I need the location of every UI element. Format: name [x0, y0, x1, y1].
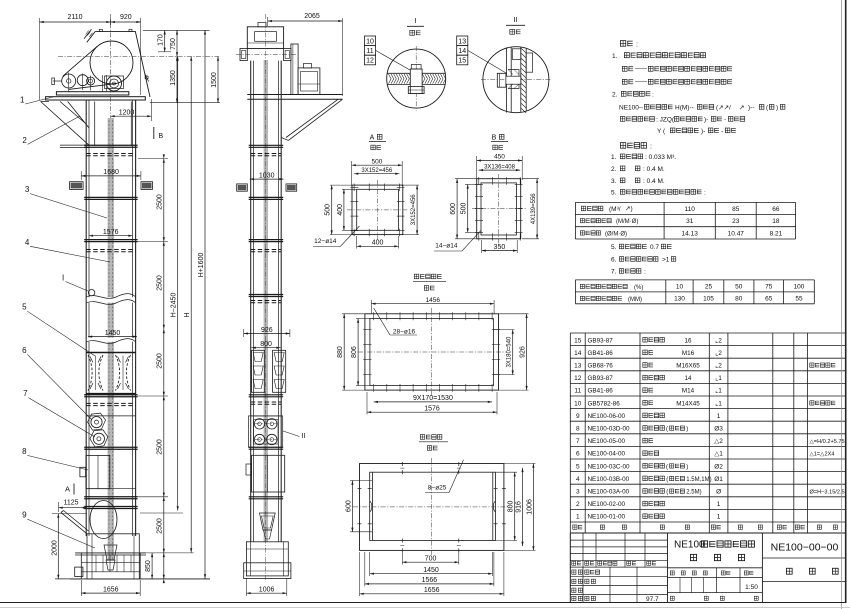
- svg-text::: :: [644, 269, 646, 276]
- svg-text:2065: 2065: [304, 13, 320, 20]
- svg-text:NE100-06-00: NE100-06-00: [588, 413, 626, 420]
- svg-text:NE100-03D-00: NE100-03D-00: [588, 426, 631, 433]
- svg-text:△1: △1: [714, 451, 723, 458]
- svg-text:500: 500: [325, 204, 332, 216]
- svg-text:400: 400: [337, 204, 344, 216]
- svg-text:NE100−00−00: NE100−00−00: [771, 542, 839, 554]
- svg-text:14: 14: [458, 48, 466, 55]
- svg-text:NE100: NE100: [674, 540, 705, 551]
- svg-text:7: 7: [23, 389, 28, 398]
- svg-text:3X136=408: 3X136=408: [484, 164, 516, 170]
- svg-text:1450: 1450: [423, 567, 439, 574]
- svg-text:II: II: [302, 433, 306, 440]
- svg-text:⌞2: ⌞2: [715, 350, 722, 357]
- svg-text:5.: 5.: [611, 244, 617, 251]
- svg-text:9: 9: [22, 511, 27, 520]
- svg-text:800: 800: [508, 500, 515, 512]
- svg-text:Ø2: Ø2: [714, 463, 723, 470]
- svg-text:100: 100: [794, 284, 805, 291]
- svg-text:(Ø/M·Ø): (Ø/M·Ø): [605, 231, 627, 237]
- svg-text:)--: )--: [748, 105, 755, 112]
- svg-text::: :: [704, 190, 706, 197]
- svg-text:920: 920: [120, 14, 132, 21]
- svg-text:1456: 1456: [426, 297, 441, 304]
- svg-text:800: 800: [260, 341, 272, 348]
- svg-text:11: 11: [574, 388, 581, 395]
- svg-text:M16X65: M16X65: [676, 363, 700, 370]
- svg-text:600: 600: [450, 203, 457, 215]
- svg-text:⌞2: ⌞2: [715, 363, 722, 370]
- svg-text:10: 10: [366, 38, 374, 45]
- svg-text:): ): [686, 427, 688, 433]
- svg-text:1566: 1566: [422, 577, 438, 584]
- svg-text:75: 75: [765, 284, 773, 291]
- svg-text:97.7: 97.7: [646, 596, 659, 603]
- svg-text::: :: [636, 42, 638, 49]
- svg-text:2500: 2500: [157, 194, 164, 210]
- svg-text:(: (: [666, 477, 668, 483]
- svg-text:——: ——: [635, 80, 647, 86]
- svg-text:B: B: [492, 135, 497, 142]
- svg-text:4X139=556: 4X139=556: [531, 193, 537, 225]
- svg-text:2.5M): 2.5M): [686, 490, 701, 496]
- svg-text:3X152=456: 3X152=456: [411, 194, 417, 226]
- svg-text:25: 25: [705, 284, 713, 291]
- svg-text:10.47: 10.47: [728, 230, 745, 237]
- svg-text:1450: 1450: [105, 330, 121, 337]
- svg-text:13: 13: [458, 38, 466, 45]
- svg-text:(%): (%): [634, 285, 643, 291]
- svg-text:↗: ↗: [739, 105, 744, 112]
- svg-text:1656: 1656: [424, 587, 440, 594]
- svg-text:3X152=456: 3X152=456: [361, 168, 393, 174]
- svg-text:450: 450: [494, 154, 505, 161]
- svg-text:>1: >1: [662, 257, 670, 264]
- svg-text:1.: 1.: [612, 53, 618, 60]
- svg-text:1: 1: [717, 514, 721, 521]
- svg-text:GB5782-86: GB5782-86: [588, 400, 621, 407]
- svg-text:31: 31: [686, 218, 694, 225]
- svg-text:1006: 1006: [526, 499, 533, 515]
- svg-text:700: 700: [425, 555, 437, 562]
- svg-text:110: 110: [685, 206, 696, 213]
- svg-text:: 0.033 M³.: : 0.033 M³.: [645, 154, 676, 161]
- svg-text:55: 55: [795, 296, 803, 303]
- svg-text:1576: 1576: [103, 229, 119, 236]
- svg-text:Y (: Y (: [657, 128, 666, 135]
- svg-text:1: 1: [20, 96, 25, 105]
- svg-text:10: 10: [676, 284, 684, 291]
- svg-text:(: (: [766, 105, 769, 112]
- svg-text:I: I: [414, 16, 416, 25]
- svg-text:2000: 2000: [51, 540, 58, 556]
- svg-text:-: -: [724, 117, 726, 124]
- svg-text:400: 400: [372, 240, 384, 247]
- svg-text:)-: )-: [704, 117, 708, 124]
- svg-text:): ): [776, 105, 778, 112]
- svg-text:2: 2: [22, 136, 27, 145]
- svg-text:⌞1: ⌞1: [715, 375, 722, 382]
- svg-text:1680: 1680: [103, 169, 119, 176]
- svg-text:3: 3: [25, 185, 30, 194]
- svg-text:(M³/: (M³/: [609, 206, 621, 213]
- svg-text:(: (: [666, 427, 668, 433]
- svg-text:: JZQ(: : JZQ(: [656, 117, 675, 124]
- svg-text:: 0.4 M.: : 0.4 M.: [643, 166, 665, 173]
- svg-text:8: 8: [576, 426, 580, 433]
- svg-text:11: 11: [366, 48, 373, 55]
- svg-text:170: 170: [158, 34, 165, 46]
- svg-text:23: 23: [732, 218, 740, 225]
- svg-text:105: 105: [703, 296, 714, 303]
- svg-text:1: 1: [576, 514, 580, 521]
- svg-text:H+1600: H+1600: [198, 253, 205, 278]
- svg-text:GB41-86: GB41-86: [588, 388, 614, 395]
- svg-text:18: 18: [772, 218, 780, 225]
- svg-text:2500: 2500: [157, 518, 164, 534]
- svg-text:916: 916: [516, 501, 523, 513]
- svg-text:NE100-01-00: NE100-01-00: [588, 514, 626, 521]
- svg-text:6: 6: [22, 346, 27, 355]
- svg-text:(↗↗/: (↗↗/: [716, 105, 731, 112]
- svg-text:1006: 1006: [259, 586, 275, 593]
- svg-text:66: 66: [772, 206, 780, 213]
- svg-text:3X180=540: 3X180=540: [507, 336, 513, 368]
- svg-text:350: 350: [494, 244, 506, 251]
- svg-text:0.7: 0.7: [650, 244, 659, 251]
- svg-text:Ø3: Ø3: [714, 426, 723, 433]
- svg-text:1350: 1350: [170, 70, 177, 86]
- svg-text:65: 65: [765, 296, 773, 303]
- svg-text:14: 14: [684, 375, 692, 382]
- svg-text:926: 926: [520, 346, 527, 358]
- svg-text:9: 9: [576, 413, 580, 420]
- svg-text:H−2450: H−2450: [171, 293, 178, 318]
- svg-text:1576: 1576: [424, 405, 440, 412]
- svg-text:GB41-86: GB41-86: [588, 350, 614, 357]
- svg-text:500: 500: [371, 158, 382, 165]
- svg-text:II: II: [513, 15, 517, 24]
- svg-text:926: 926: [261, 327, 273, 334]
- svg-text:806: 806: [351, 346, 358, 358]
- svg-text:2: 2: [576, 501, 580, 508]
- svg-text:M16: M16: [682, 350, 695, 357]
- svg-text:(: (: [666, 490, 668, 496]
- svg-text:1125: 1125: [63, 500, 78, 507]
- svg-text:130: 130: [674, 296, 685, 303]
- svg-text:7.: 7.: [611, 269, 617, 276]
- svg-text:⌞1: ⌞1: [715, 400, 722, 407]
- svg-text:⌞2: ⌞2: [715, 337, 722, 344]
- svg-text:GB68-76: GB68-76: [588, 363, 614, 370]
- svg-text:1200: 1200: [119, 110, 135, 117]
- svg-text:Ø=H−3.15/2.5: Ø=H−3.15/2.5: [810, 490, 845, 496]
- svg-text:15: 15: [458, 58, 466, 65]
- svg-text:1.: 1.: [611, 154, 617, 161]
- svg-text:I: I: [62, 273, 64, 282]
- svg-text:Ø: Ø: [716, 489, 721, 496]
- svg-text:2110: 2110: [67, 14, 82, 21]
- svg-text:△2: △2: [714, 438, 723, 445]
- svg-text:5.: 5.: [611, 190, 617, 197]
- svg-text:-: -: [721, 128, 723, 135]
- svg-text:M14X45: M14X45: [676, 400, 700, 407]
- svg-text:M14: M14: [682, 388, 695, 395]
- svg-text:NE100-02-00: NE100-02-00: [588, 501, 626, 508]
- svg-text:NE100-05-00: NE100-05-00: [588, 438, 626, 445]
- svg-text:: 0.4 M.: : 0.4 M.: [643, 178, 665, 185]
- svg-text:14−ø14: 14−ø14: [435, 243, 458, 250]
- svg-text:↗): ↗): [625, 206, 633, 213]
- svg-text:NE100--: NE100--: [619, 105, 643, 112]
- svg-text:1500: 1500: [211, 72, 218, 88]
- svg-text:8.21: 8.21: [770, 230, 783, 237]
- svg-text:8−ø25: 8−ø25: [428, 484, 447, 491]
- svg-text:850: 850: [145, 560, 152, 572]
- svg-text:16: 16: [684, 337, 692, 344]
- svg-text:600: 600: [345, 500, 352, 512]
- svg-text:2500: 2500: [157, 439, 164, 455]
- svg-text:750: 750: [170, 38, 177, 50]
- svg-text:A: A: [370, 135, 375, 142]
- svg-text:GB93-87: GB93-87: [588, 375, 614, 382]
- svg-text:1030: 1030: [259, 173, 275, 180]
- svg-text:H: H: [184, 312, 191, 317]
- svg-text:1656: 1656: [103, 586, 119, 593]
- svg-text:85: 85: [732, 206, 740, 213]
- svg-text:7: 7: [576, 438, 580, 445]
- svg-text:2500: 2500: [157, 275, 164, 291]
- svg-text:): ): [686, 464, 688, 470]
- svg-text:GB93-87: GB93-87: [588, 337, 614, 344]
- svg-text:5: 5: [576, 463, 580, 470]
- svg-text:1: 1: [717, 501, 721, 508]
- svg-text:⌞1: ⌞1: [715, 388, 722, 395]
- svg-text:15: 15: [574, 337, 582, 344]
- svg-text:Ø1: Ø1: [714, 476, 723, 483]
- svg-text:(MM): (MM): [628, 297, 642, 303]
- svg-text::: :: [652, 92, 654, 99]
- svg-text:12: 12: [366, 58, 374, 65]
- svg-text:6: 6: [576, 451, 580, 458]
- svg-text:4: 4: [25, 238, 30, 247]
- svg-text:28−ø16: 28−ø16: [393, 329, 416, 336]
- svg-text:△1=△2X4: △1=△2X4: [810, 452, 835, 458]
- svg-text:B: B: [159, 133, 164, 140]
- svg-text:A: A: [65, 485, 70, 494]
- svg-text:1:50: 1:50: [745, 584, 758, 591]
- svg-text:14.13: 14.13: [682, 230, 699, 237]
- svg-text:2500: 2500: [157, 353, 164, 369]
- svg-text:NE100-03B-00: NE100-03B-00: [588, 476, 630, 483]
- svg-text:8: 8: [22, 447, 27, 456]
- svg-text:880: 880: [337, 346, 344, 358]
- svg-text:)-: )-: [701, 128, 705, 135]
- svg-text:14: 14: [574, 350, 582, 357]
- svg-text:——: ——: [635, 67, 647, 73]
- svg-text:H(M)--: H(M)--: [675, 105, 694, 112]
- svg-text:4: 4: [576, 476, 580, 483]
- svg-text:5: 5: [22, 303, 27, 312]
- svg-text:12−ø14: 12−ø14: [314, 238, 337, 245]
- svg-text:2.: 2.: [611, 166, 617, 173]
- svg-text:3: 3: [576, 489, 580, 496]
- svg-text:9X170=1530: 9X170=1530: [413, 395, 453, 402]
- svg-text:2.: 2.: [612, 92, 618, 99]
- svg-text:12: 12: [574, 375, 582, 382]
- svg-text:1: 1: [717, 413, 721, 420]
- svg-text:500: 500: [461, 202, 468, 214]
- svg-text:△=H/0.2+5.75: △=H/0.2+5.75: [810, 439, 845, 445]
- svg-text:(M/M·Ø): (M/M·Ø): [616, 219, 638, 225]
- svg-text:1.5M,1M): 1.5M,1M): [686, 477, 711, 483]
- svg-text:NE100-03C-00: NE100-03C-00: [588, 463, 631, 470]
- svg-text:(: (: [666, 464, 668, 470]
- svg-text:13: 13: [574, 363, 582, 370]
- svg-text::: :: [650, 144, 652, 151]
- svg-text:3.: 3.: [611, 178, 617, 185]
- svg-text:50: 50: [735, 284, 743, 291]
- svg-text:80: 80: [735, 296, 743, 303]
- svg-text:NE100-03A-00: NE100-03A-00: [588, 489, 630, 496]
- svg-text:10: 10: [574, 400, 582, 407]
- svg-text:NE100-04-00: NE100-04-00: [588, 451, 626, 458]
- svg-text:6.: 6.: [611, 257, 617, 264]
